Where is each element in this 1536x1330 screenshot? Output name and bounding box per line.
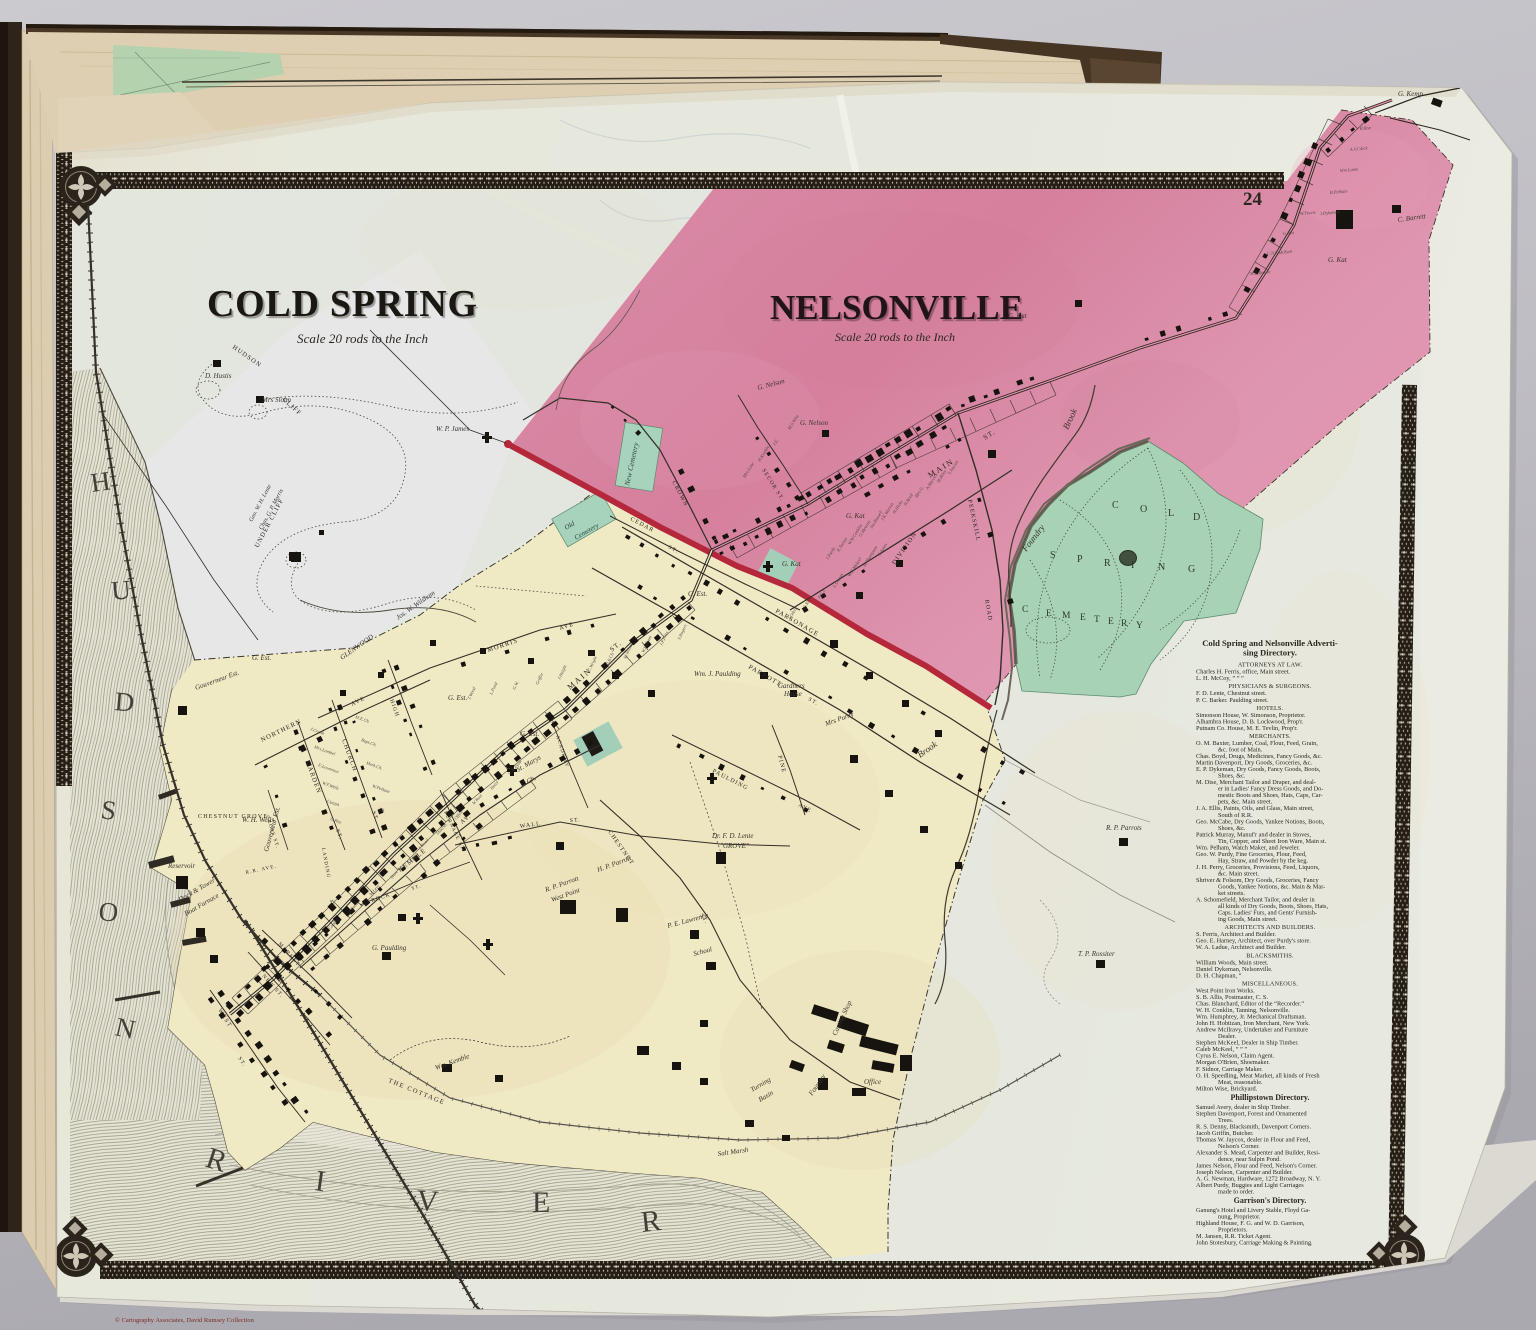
svg-text:G. Kat: G. Kat	[1008, 312, 1028, 320]
svg-text:G. Kat: G. Kat	[782, 560, 802, 568]
svg-text:Mrs Sloan: Mrs Sloan	[261, 396, 291, 404]
svg-text:Highland House, F. G. and W. D: Highland House, F. G. and W. D. Garrison…	[1196, 1220, 1305, 1227]
svg-text:O: O	[1140, 504, 1147, 515]
svg-text:H: H	[89, 466, 112, 498]
svg-text:Garrison's Directory.: Garrison's Directory.	[1234, 1196, 1307, 1205]
svg-text:R.Roe: R.Roe	[1359, 125, 1371, 131]
svg-text:G. Est.: G. Est.	[252, 654, 272, 662]
svg-text:Scale 20 rods to the Inch: Scale 20 rods to the Inch	[835, 330, 955, 344]
svg-text:T. P. Rossiter: T. P. Rossiter	[1078, 950, 1115, 958]
svg-text:sing Directory.: sing Directory.	[1243, 648, 1297, 658]
svg-text:R: R	[639, 1204, 662, 1239]
svg-text:L: L	[1168, 508, 1174, 519]
svg-text:S: S	[1050, 550, 1056, 561]
svg-text:W. A. Ladue, Architect and Bui: W. A. Ladue, Architect and Builder.	[1196, 944, 1287, 951]
svg-text:Reservoir: Reservoir	[167, 862, 195, 870]
svg-text:N: N	[1158, 562, 1165, 573]
svg-text:ST.: ST.	[570, 817, 581, 824]
svg-text:Andrew McIlravy, Undertaker an: Andrew McIlravy, Undertaker and Furnitur…	[1196, 1027, 1308, 1034]
svg-text:PHYSICIANS & SURGEONS.: PHYSICIANS & SURGEONS.	[1229, 683, 1312, 690]
svg-text:D: D	[1193, 512, 1200, 523]
svg-text:E: E	[1046, 609, 1052, 619]
svg-text:24: 24	[1243, 189, 1263, 210]
svg-text:E: E	[1080, 613, 1086, 623]
svg-text:Cold Spring and Nelsonville Ad: Cold Spring and Nelsonville Adverti-	[1202, 638, 1338, 648]
svg-text:O: O	[97, 896, 119, 928]
svg-text:E: E	[532, 1186, 550, 1219]
svg-text:G.Rist: G.Rist	[1283, 230, 1296, 236]
svg-text:Office: Office	[864, 1078, 881, 1086]
svg-text:Y: Y	[1136, 621, 1143, 631]
svg-text:Dr. F. D. Lente: Dr. F. D. Lente	[711, 832, 753, 840]
svg-text:E. P. Dykeman, Dry Goods, Fanc: E. P. Dykeman, Dry Goods, Fancy Goods, B…	[1196, 766, 1321, 773]
svg-text:HOTELS.: HOTELS.	[1257, 705, 1284, 712]
svg-text:G: G	[1188, 564, 1195, 575]
svg-text:T: T	[1094, 615, 1100, 625]
svg-text:G. Est.: G. Est.	[520, 730, 540, 738]
svg-text:"GROVE": "GROVE"	[720, 842, 749, 850]
svg-text:J. A. Ellis, Paints, Oils, and: J. A. Ellis, Paints, Oils, and Glass, Ma…	[1196, 805, 1314, 812]
svg-text:House: House	[783, 690, 802, 698]
svg-text:C: C	[1112, 500, 1119, 511]
svg-text:G. Kat: G. Kat	[1328, 256, 1348, 264]
svg-text:G. Nelson: G. Nelson	[800, 419, 829, 427]
svg-text:U: U	[110, 574, 132, 606]
svg-text:G. Est.: G. Est.	[448, 694, 468, 702]
svg-text:R: R	[1104, 558, 1111, 569]
svg-text:W. H. Wells: W. H. Wells	[242, 816, 274, 824]
svg-text:W. P. James: W. P. James	[436, 425, 469, 433]
svg-text:I: I	[1131, 560, 1134, 571]
svg-text:P: P	[1077, 554, 1083, 565]
svg-text:M: M	[1062, 611, 1071, 621]
svg-text:C: C	[1022, 605, 1028, 615]
svg-text:Wm. J. Paulding: Wm. J. Paulding	[694, 670, 741, 678]
svg-text:ing Goods, Main street.: ing Goods, Main street.	[1218, 916, 1278, 923]
svg-text:MERCHANTS.: MERCHANTS.	[1249, 733, 1291, 740]
svg-text:COLD SPRING: COLD SPRING	[207, 283, 477, 325]
svg-text:D. Hustis: D. Hustis	[204, 372, 232, 380]
svg-text:D: D	[113, 686, 135, 718]
svg-text:made to order.: made to order.	[1218, 1189, 1255, 1196]
svg-text:Phillipstown Directory.: Phillipstown Directory.	[1231, 1093, 1310, 1102]
svg-text:ATTORNEYS AT LAW.: ATTORNEYS AT LAW.	[1238, 662, 1302, 669]
svg-text:NELSONVILLE: NELSONVILLE	[770, 288, 1023, 327]
svg-text:G. Est.: G. Est.	[688, 590, 708, 598]
svg-text:V: V	[416, 1184, 440, 1218]
svg-text:ARCHITECTS AND BUILDERS.: ARCHITECTS AND BUILDERS.	[1225, 924, 1316, 931]
svg-text:R. P. Parrots: R. P. Parrots	[1105, 824, 1142, 832]
svg-text:R: R	[1121, 619, 1128, 629]
svg-text:L. H. McCoy, ” ”: L. H. McCoy, ” ” ”	[1196, 675, 1244, 682]
svg-text:Scale 20 rods to the Inch: Scale 20 rods to the Inch	[297, 331, 428, 346]
svg-text:Gardners: Gardners	[778, 682, 805, 690]
svg-text:John Stotesbury, Carriage Maki: John Stotesbury, Carriage Making & Paint…	[1196, 1240, 1313, 1247]
svg-text:Geo. McCabe, Dry Goods, Yankee: Geo. McCabe, Dry Goods, Yankee Notions, …	[1196, 818, 1325, 825]
svg-text:G. Kat: G. Kat	[846, 512, 866, 520]
svg-text:G. Kemp: G. Kemp	[1398, 90, 1423, 98]
svg-text:P. C. Barker. Paulding street: P. C. Barker. Paulding street.	[1196, 697, 1269, 704]
svg-text:Putnam Co. House, M. E. Tevlin: Putnam Co. House, M. E. Tevlin, Prop'r.	[1196, 725, 1298, 732]
svg-text:MISCELLANEOUS.: MISCELLANEOUS.	[1242, 980, 1298, 987]
svg-text:D. H. Chapman, ”: D. H. Chapman, ”	[1196, 972, 1242, 979]
svg-text:Milton Wise, Brickyard.: Milton Wise, Brickyard.	[1196, 1085, 1258, 1092]
svg-text:Stephen Davenport, Forest and: Stephen Davenport, Forest and Ornamented	[1196, 1110, 1308, 1117]
svg-text:BLACKSMITHS.: BLACKSMITHS.	[1246, 952, 1294, 959]
svg-text:G. Paulding: G. Paulding	[372, 944, 407, 952]
svg-text:E: E	[1108, 617, 1114, 627]
svg-text:© Cartography Associates, Davi: © Cartography Associates, David Rumsey C…	[115, 1317, 255, 1324]
